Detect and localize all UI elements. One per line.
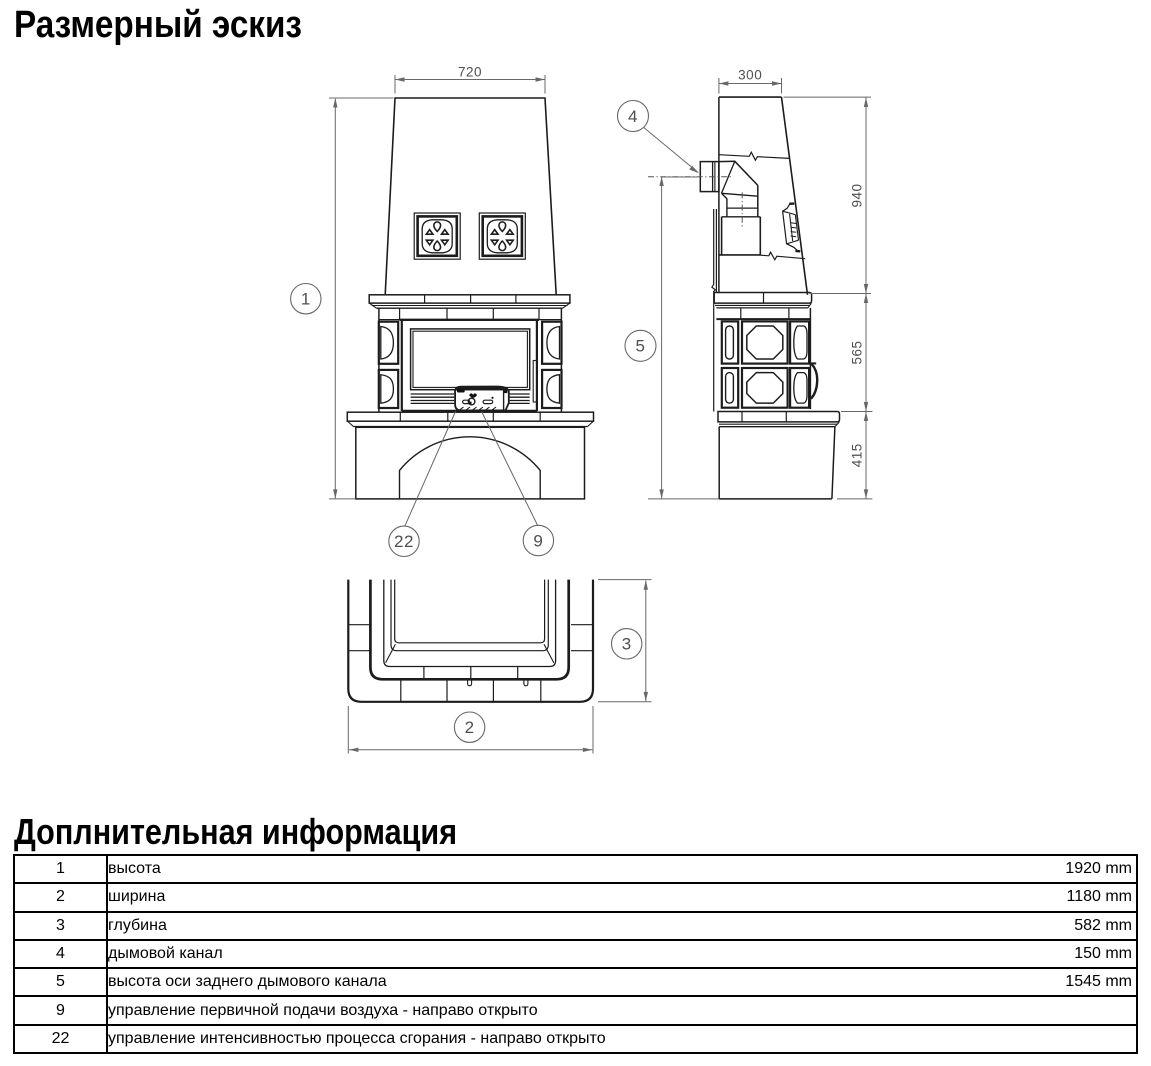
svg-text:415: 415 <box>850 443 865 467</box>
svg-text:2: 2 <box>465 718 475 737</box>
svg-text:300: 300 <box>738 68 762 83</box>
svg-text:3: 3 <box>622 635 632 654</box>
svg-text:9: 9 <box>533 531 543 550</box>
svg-text:1: 1 <box>301 290 311 309</box>
svg-text:940: 940 <box>850 183 865 207</box>
svg-text:4: 4 <box>628 107 638 126</box>
svg-text:720: 720 <box>458 65 482 80</box>
svg-text:5: 5 <box>636 337 646 356</box>
svg-text:565: 565 <box>850 340 865 364</box>
svg-text:22: 22 <box>394 532 414 551</box>
